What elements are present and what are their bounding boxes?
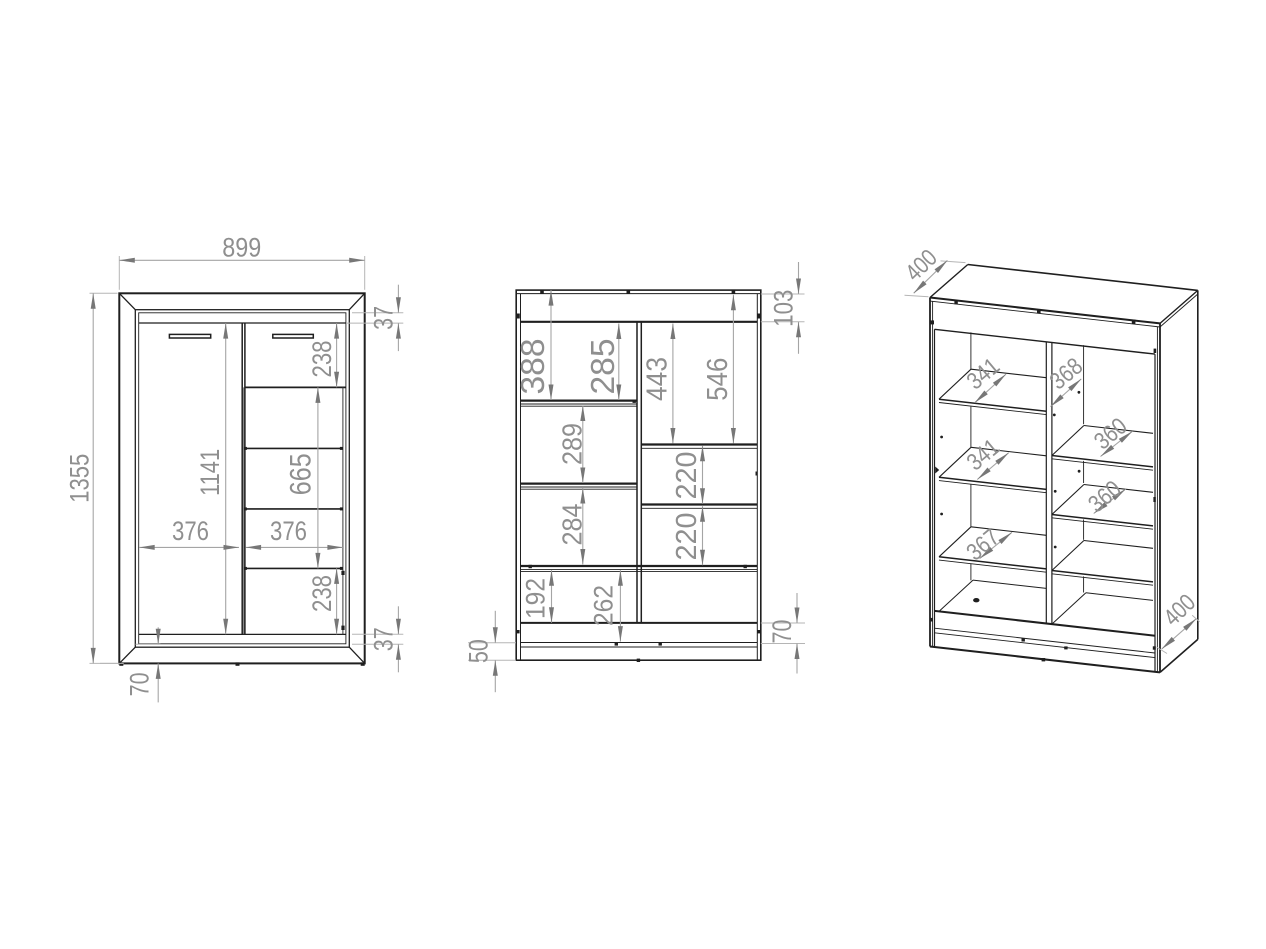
- svg-text:70: 70: [767, 620, 797, 644]
- svg-text:284: 284: [557, 504, 588, 546]
- svg-text:192: 192: [521, 578, 551, 619]
- svg-text:899: 899: [222, 233, 261, 263]
- svg-text:50: 50: [464, 639, 494, 663]
- svg-text:1355: 1355: [65, 454, 95, 503]
- svg-text:70: 70: [125, 672, 155, 696]
- svg-text:220: 220: [671, 513, 703, 561]
- svg-text:238: 238: [307, 341, 337, 378]
- svg-text:376: 376: [270, 516, 307, 546]
- svg-text:103: 103: [768, 290, 798, 327]
- svg-text:546: 546: [702, 358, 734, 401]
- svg-text:37: 37: [369, 306, 399, 330]
- svg-text:443: 443: [642, 357, 674, 401]
- svg-text:262: 262: [589, 585, 619, 626]
- svg-text:37: 37: [369, 627, 399, 651]
- svg-text:376: 376: [172, 516, 209, 546]
- svg-text:220: 220: [671, 452, 703, 500]
- svg-text:388: 388: [514, 339, 551, 395]
- svg-text:238: 238: [307, 575, 337, 612]
- svg-text:665: 665: [285, 453, 318, 495]
- svg-text:1141: 1141: [195, 449, 225, 496]
- svg-text:285: 285: [584, 339, 621, 395]
- svg-text:289: 289: [557, 423, 588, 465]
